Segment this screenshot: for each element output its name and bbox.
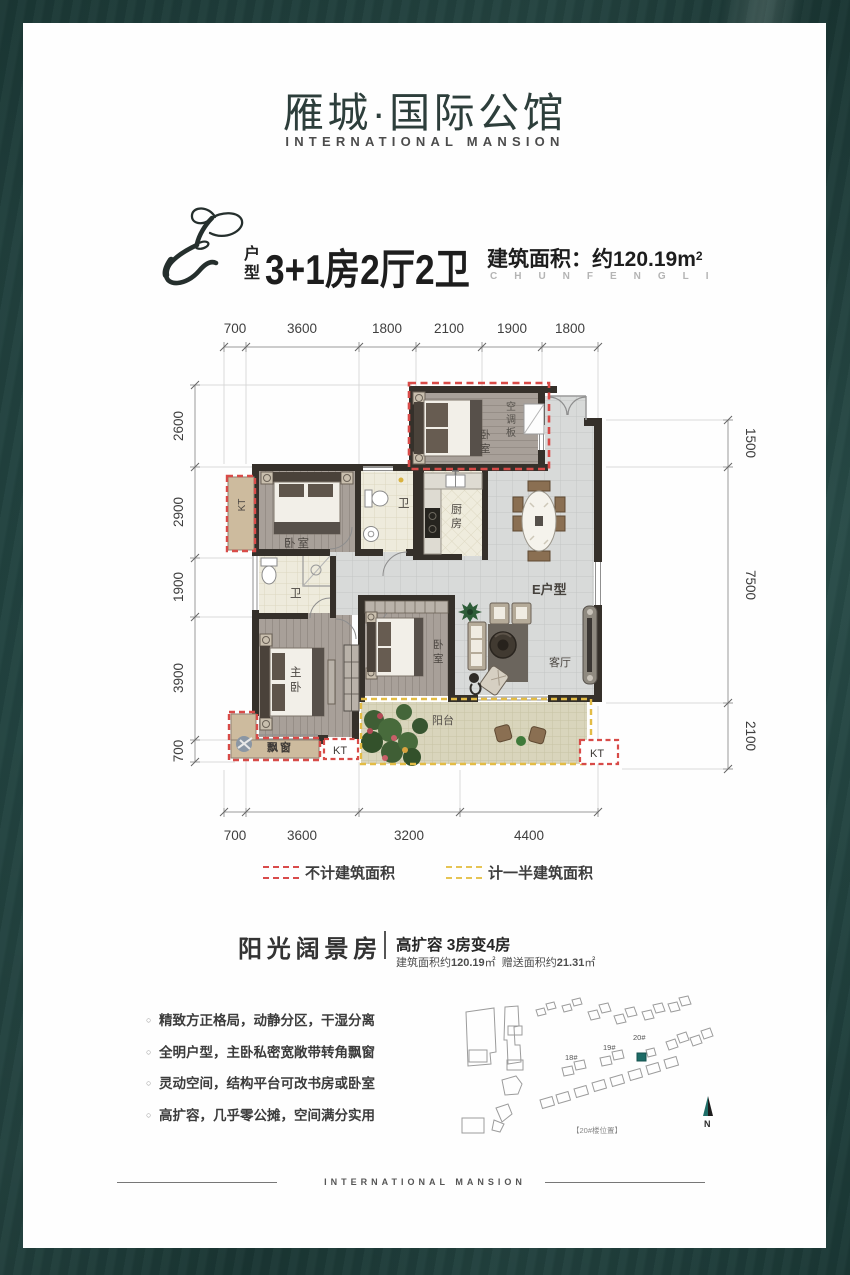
svg-text:2600: 2600 <box>171 411 186 441</box>
svg-text:KT: KT <box>237 499 248 512</box>
svg-text:2100: 2100 <box>434 321 464 336</box>
svg-text:1900: 1900 <box>497 321 527 336</box>
svg-text:1800: 1800 <box>372 321 402 336</box>
svg-text:4400: 4400 <box>514 828 544 843</box>
svg-text:7500: 7500 <box>743 570 758 600</box>
svg-text:18#: 18# <box>565 1053 578 1062</box>
svg-text:2900: 2900 <box>171 497 186 527</box>
svg-text:卧室: 卧室 <box>284 536 311 550</box>
svg-text:1900: 1900 <box>171 572 186 602</box>
svg-text:飘窗: 飘窗 <box>267 740 293 754</box>
svg-text:700: 700 <box>171 740 186 763</box>
svg-text:KT: KT <box>333 745 347 757</box>
svg-text:客厅: 客厅 <box>549 655 571 669</box>
svg-text:【20#楼位置】: 【20#楼位置】 <box>572 1125 622 1135</box>
svg-text:1800: 1800 <box>555 321 585 336</box>
svg-text:20#: 20# <box>633 1033 646 1042</box>
svg-text:空调板: 空调板 <box>506 400 516 439</box>
svg-text:卫: 卫 <box>290 588 302 600</box>
svg-text:3900: 3900 <box>171 663 186 693</box>
svg-text:19#: 19# <box>603 1043 616 1052</box>
svg-text:3200: 3200 <box>394 828 424 843</box>
svg-text:卫: 卫 <box>398 498 410 510</box>
svg-text:3600: 3600 <box>287 321 317 336</box>
svg-text:阳台: 阳台 <box>432 713 454 727</box>
svg-text:1500: 1500 <box>743 428 758 458</box>
svg-text:700: 700 <box>224 828 247 843</box>
svg-text:N: N <box>704 1119 711 1129</box>
svg-text:700: 700 <box>224 321 247 336</box>
svg-text:KT: KT <box>590 748 604 760</box>
svg-text:3600: 3600 <box>287 828 317 843</box>
svg-text:2100: 2100 <box>743 721 758 751</box>
svg-text:E户型: E户型 <box>532 582 567 597</box>
